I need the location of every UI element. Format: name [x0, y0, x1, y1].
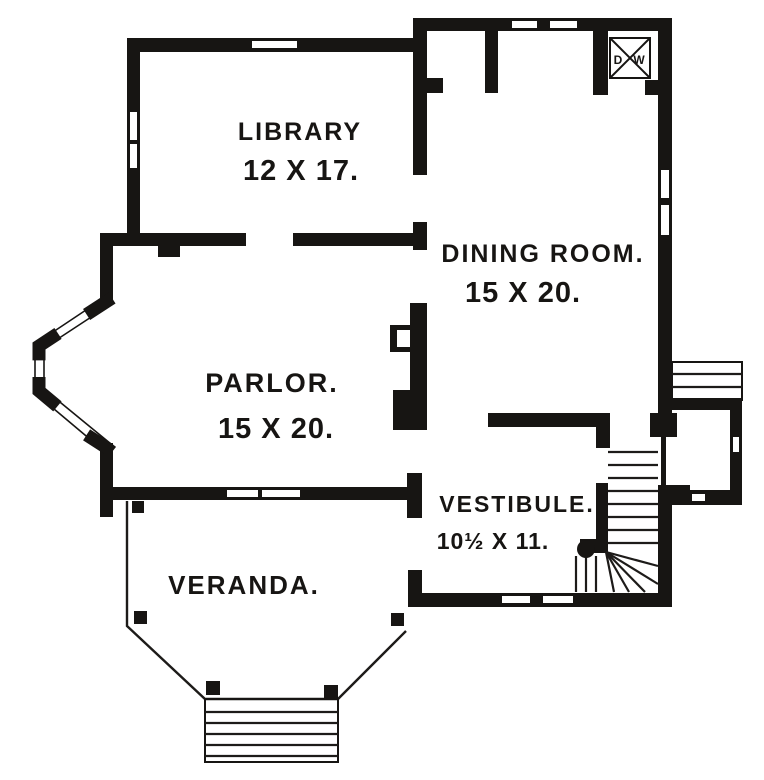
wall-vestibule-south	[408, 593, 672, 607]
wall-dining-north	[413, 18, 672, 31]
dumbwaiter: D W	[610, 38, 650, 78]
bay-corner-lower-left	[39, 377, 57, 406]
door-mark	[158, 246, 180, 257]
wall-east-lower	[658, 505, 672, 607]
door-vestibule-front-1	[502, 596, 530, 603]
wall-east-thin-opening	[661, 437, 666, 489]
staircase	[576, 452, 658, 592]
window-dining-east-1	[661, 170, 669, 198]
wall-parlor-south	[100, 487, 420, 500]
veranda-post	[391, 613, 404, 626]
wall-dining-niche-stub-a	[485, 31, 498, 93]
window-library-west-2	[130, 144, 137, 168]
door-vestibule-front-2	[543, 596, 573, 603]
door-porch-south	[692, 494, 705, 501]
dumbwaiter-label-w: W	[633, 53, 645, 67]
label-dining-dims: 15 X 20.	[465, 277, 581, 309]
floor-plan-page: D W	[0, 0, 764, 780]
label-veranda: VERANDA.	[168, 570, 320, 600]
chimney-flue-hole	[397, 330, 410, 347]
wall-library-parlor-left	[100, 233, 246, 246]
window-dining-east-2	[661, 205, 669, 235]
wall-library-parlor-right	[293, 233, 427, 246]
label-library: LIBRARY	[238, 118, 362, 146]
veranda-post	[324, 685, 338, 699]
wall-dining-niche-stub-west	[427, 78, 443, 93]
stair-newel-post	[577, 540, 595, 558]
room-labels: LIBRARY 12 X 17. DINING ROOM. 15 X 20. P…	[168, 118, 644, 600]
label-dining: DINING ROOM.	[441, 240, 644, 268]
veranda-steps-outline	[205, 699, 338, 762]
wall-dining-vestibule-cap	[596, 413, 610, 448]
window-library-west-1	[130, 112, 137, 140]
bay-corner-upper-left	[39, 333, 58, 360]
wall-dining-niche-stub-b	[593, 31, 608, 95]
window-dining-north-2	[550, 21, 577, 28]
window-porch-east	[733, 437, 739, 452]
bay-corner-bottom	[87, 435, 112, 452]
label-parlor: PARLOR.	[205, 368, 339, 398]
floor-plan-drawing: D W	[0, 0, 764, 780]
window-dining-north-1	[512, 21, 537, 28]
wall-dumbwaiter-stub	[645, 80, 658, 95]
veranda-post	[132, 501, 144, 513]
wall-divider-tee-cap	[413, 222, 427, 250]
door-parlor-veranda-1	[227, 490, 258, 497]
wall-dining-vestibule	[488, 413, 610, 427]
veranda-post	[134, 611, 147, 624]
windows	[130, 21, 739, 603]
bay-corner-top	[87, 298, 112, 315]
veranda-edge	[127, 501, 406, 699]
label-parlor-dims: 15 X 20.	[218, 413, 334, 445]
label-vestibule: VESTIBULE.	[439, 491, 594, 517]
bay-window-outer-line	[35, 298, 104, 451]
bay-window	[35, 298, 112, 452]
label-library-dims: 12 X 17.	[243, 155, 359, 187]
wall-vestibule-west-jamb	[407, 473, 422, 518]
chimney-breast-lower	[393, 390, 413, 430]
veranda	[127, 501, 406, 762]
dumbwaiter-label-d: D	[614, 53, 623, 67]
walls	[100, 18, 742, 607]
wall-library-dining-divider	[413, 31, 427, 175]
label-vestibule-dims: 10½ X 11.	[437, 528, 550, 554]
wall-east-stub	[650, 413, 677, 437]
door-parlor-veranda-2	[262, 490, 300, 497]
side-steps-outline	[672, 362, 742, 400]
veranda-post	[206, 681, 220, 695]
side-steps	[672, 362, 742, 400]
window-library-north	[252, 41, 297, 48]
bay-window-inner-line	[44, 304, 111, 444]
